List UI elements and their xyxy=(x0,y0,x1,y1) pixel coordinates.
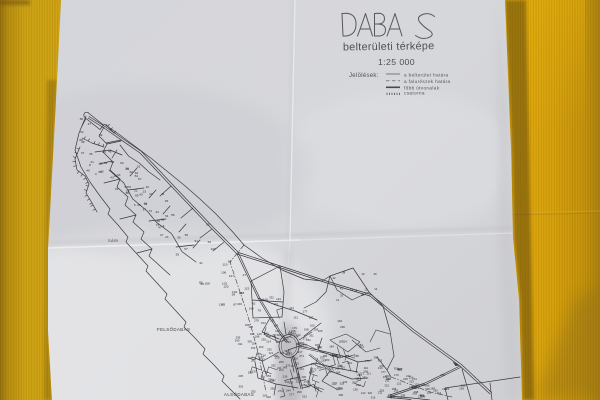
svg-text:47: 47 xyxy=(243,273,247,277)
svg-text:39: 39 xyxy=(373,272,377,276)
svg-text:62: 62 xyxy=(115,187,119,191)
svg-text:158: 158 xyxy=(427,390,432,394)
svg-text:38: 38 xyxy=(80,117,84,121)
svg-text:56: 56 xyxy=(185,233,189,237)
svg-text:40: 40 xyxy=(86,168,90,172)
svg-text:271: 271 xyxy=(299,354,304,358)
svg-text:54: 54 xyxy=(135,174,139,178)
svg-text:148: 148 xyxy=(430,387,435,391)
svg-text:33: 33 xyxy=(340,294,344,298)
svg-text:74: 74 xyxy=(156,223,160,227)
svg-text:183: 183 xyxy=(339,340,344,344)
svg-text:102: 102 xyxy=(222,281,227,285)
svg-text:216: 216 xyxy=(283,375,288,379)
svg-text:43: 43 xyxy=(139,192,143,196)
svg-text:57: 57 xyxy=(138,177,142,181)
svg-text:91: 91 xyxy=(194,239,198,243)
svg-text:41: 41 xyxy=(340,287,344,291)
svg-text:130: 130 xyxy=(285,380,290,384)
svg-text:216: 216 xyxy=(296,379,301,383)
svg-text:27: 27 xyxy=(160,233,164,237)
svg-text:253: 253 xyxy=(266,374,271,378)
svg-text:25: 25 xyxy=(165,199,169,203)
svg-text:106: 106 xyxy=(388,393,393,397)
svg-text:64: 64 xyxy=(117,173,121,177)
svg-text:6: 6 xyxy=(134,203,136,207)
svg-text:42: 42 xyxy=(252,301,256,305)
svg-text:69: 69 xyxy=(228,259,232,263)
svg-text:259: 259 xyxy=(313,327,318,331)
svg-text:123: 123 xyxy=(244,287,249,291)
svg-text:122: 122 xyxy=(397,381,402,385)
svg-text:37: 37 xyxy=(142,208,146,212)
svg-text:164: 164 xyxy=(335,370,340,374)
svg-text:59: 59 xyxy=(206,223,210,227)
svg-text:271: 271 xyxy=(303,337,308,341)
svg-text:179: 179 xyxy=(365,359,370,363)
svg-text:58: 58 xyxy=(171,213,175,217)
svg-text:281: 281 xyxy=(251,359,256,363)
svg-text:4: 4 xyxy=(95,172,97,176)
svg-text:102: 102 xyxy=(232,290,237,294)
svg-text:csatorna: csatorna xyxy=(404,91,425,96)
svg-text:226: 226 xyxy=(444,387,449,391)
svg-text:252: 252 xyxy=(296,342,301,346)
svg-text:140: 140 xyxy=(282,366,287,370)
svg-text:302: 302 xyxy=(238,384,243,388)
svg-text:332: 332 xyxy=(269,296,274,300)
svg-text:210: 210 xyxy=(337,363,342,367)
svg-text:33: 33 xyxy=(137,165,141,169)
svg-text:28: 28 xyxy=(361,293,365,297)
svg-text:39: 39 xyxy=(104,161,108,165)
svg-text:73: 73 xyxy=(149,209,153,213)
svg-text:21: 21 xyxy=(165,235,169,239)
svg-text:ALSÓDABAS: ALSÓDABAS xyxy=(224,392,254,397)
svg-text:290: 290 xyxy=(339,393,344,397)
svg-text:79: 79 xyxy=(257,308,261,312)
svg-text:242: 242 xyxy=(356,383,361,387)
svg-text:282: 282 xyxy=(362,376,367,380)
svg-text:278: 278 xyxy=(254,318,259,322)
svg-text:141: 141 xyxy=(275,329,280,333)
svg-text:29: 29 xyxy=(354,288,358,292)
svg-text:46: 46 xyxy=(108,150,112,154)
svg-text:176: 176 xyxy=(394,373,399,377)
svg-text:271: 271 xyxy=(359,345,364,349)
svg-text:116: 116 xyxy=(273,302,278,306)
svg-text:10: 10 xyxy=(149,192,153,196)
svg-text:244: 244 xyxy=(286,389,291,393)
svg-text:1:25 000: 1:25 000 xyxy=(378,57,415,67)
svg-text:101: 101 xyxy=(299,367,304,371)
svg-text:238: 238 xyxy=(459,386,464,390)
svg-text:51: 51 xyxy=(165,214,169,218)
svg-text:221: 221 xyxy=(295,362,300,366)
svg-text:10: 10 xyxy=(361,272,365,276)
svg-text:23: 23 xyxy=(143,189,147,193)
svg-text:168: 168 xyxy=(255,334,260,338)
svg-text:235: 235 xyxy=(238,374,243,378)
svg-text:11: 11 xyxy=(114,174,117,178)
svg-text:65: 65 xyxy=(137,203,141,207)
svg-text:152: 152 xyxy=(271,333,276,337)
svg-text:39: 39 xyxy=(99,133,103,137)
svg-text:149: 149 xyxy=(337,319,342,323)
svg-text:11: 11 xyxy=(336,298,339,302)
svg-text:101: 101 xyxy=(383,375,388,379)
svg-text:299: 299 xyxy=(340,325,345,329)
svg-text:105: 105 xyxy=(310,324,315,328)
svg-text:274: 274 xyxy=(412,377,417,381)
svg-text:327: 327 xyxy=(309,316,314,320)
svg-text:246: 246 xyxy=(411,386,416,390)
svg-text:38: 38 xyxy=(342,270,346,274)
svg-text:107: 107 xyxy=(261,376,266,380)
svg-text:177: 177 xyxy=(381,370,386,374)
svg-text:127: 127 xyxy=(239,291,244,295)
svg-text:266: 266 xyxy=(425,384,430,388)
svg-text:56: 56 xyxy=(126,167,130,171)
svg-text:316: 316 xyxy=(371,395,376,399)
svg-text:131: 131 xyxy=(270,318,275,322)
svg-text:188: 188 xyxy=(305,384,310,388)
svg-text:42: 42 xyxy=(332,276,336,280)
svg-text:236: 236 xyxy=(237,302,242,306)
svg-text:168: 168 xyxy=(263,298,268,302)
svg-text:299: 299 xyxy=(297,390,302,394)
svg-text:238: 238 xyxy=(291,329,296,333)
svg-text:211: 211 xyxy=(378,391,383,395)
svg-text:137: 137 xyxy=(286,349,291,353)
svg-text:60: 60 xyxy=(120,161,124,165)
svg-text:200: 200 xyxy=(440,373,445,377)
svg-text:60: 60 xyxy=(100,169,104,173)
svg-text:102: 102 xyxy=(397,395,402,399)
svg-text:SÁRI: SÁRI xyxy=(108,239,119,243)
svg-text:9: 9 xyxy=(163,224,165,228)
svg-text:Jelölések:: Jelölések: xyxy=(349,73,379,79)
svg-text:198: 198 xyxy=(250,332,255,336)
svg-text:336: 336 xyxy=(247,339,252,343)
svg-text:59: 59 xyxy=(176,252,180,256)
svg-text:16: 16 xyxy=(145,185,149,189)
svg-text:112: 112 xyxy=(219,303,224,307)
svg-text:11: 11 xyxy=(161,192,164,196)
svg-text:259: 259 xyxy=(279,360,284,364)
svg-text:131: 131 xyxy=(293,316,298,320)
svg-text:265: 265 xyxy=(304,380,309,384)
svg-text:100: 100 xyxy=(420,383,425,387)
svg-text:21: 21 xyxy=(90,160,94,164)
svg-text:22: 22 xyxy=(155,210,159,214)
svg-text:184: 184 xyxy=(329,344,334,348)
svg-text:68: 68 xyxy=(161,217,165,221)
svg-text:143: 143 xyxy=(361,391,366,395)
svg-text:331: 331 xyxy=(309,334,314,338)
svg-text:313: 313 xyxy=(302,395,307,399)
svg-text:41: 41 xyxy=(199,261,203,265)
svg-text:153: 153 xyxy=(251,346,256,350)
svg-text:belterületi térképe: belterületi térképe xyxy=(343,40,435,53)
svg-text:131: 131 xyxy=(289,306,294,310)
svg-text:105: 105 xyxy=(264,332,269,336)
svg-text:32: 32 xyxy=(99,162,103,166)
svg-text:185: 185 xyxy=(354,354,359,358)
svg-text:169: 169 xyxy=(249,306,254,310)
svg-text:14: 14 xyxy=(126,190,130,194)
svg-text:65: 65 xyxy=(200,282,204,286)
svg-text:255: 255 xyxy=(338,387,343,391)
svg-text:47: 47 xyxy=(88,122,92,126)
svg-text:177: 177 xyxy=(303,310,308,314)
svg-text:273: 273 xyxy=(278,389,283,393)
svg-text:234: 234 xyxy=(379,364,384,368)
svg-text:196: 196 xyxy=(317,346,322,350)
svg-text:108: 108 xyxy=(205,281,210,285)
svg-text:43: 43 xyxy=(111,160,115,164)
svg-text:37: 37 xyxy=(81,151,85,155)
svg-text:52: 52 xyxy=(80,130,84,134)
svg-text:150: 150 xyxy=(274,354,279,358)
svg-text:206: 206 xyxy=(252,341,257,345)
svg-text:206: 206 xyxy=(301,375,306,379)
svg-text:30: 30 xyxy=(177,236,181,240)
svg-text:211: 211 xyxy=(366,372,371,376)
svg-text:304: 304 xyxy=(347,361,352,365)
svg-text:106: 106 xyxy=(221,270,226,274)
svg-text:295: 295 xyxy=(270,386,275,390)
svg-text:151: 151 xyxy=(311,362,316,366)
svg-text:110: 110 xyxy=(364,366,369,370)
svg-text:137: 137 xyxy=(329,370,334,374)
svg-text:69: 69 xyxy=(135,193,139,197)
svg-text:214: 214 xyxy=(266,340,271,344)
svg-text:293: 293 xyxy=(286,340,291,344)
svg-text:124: 124 xyxy=(276,297,281,301)
svg-text:FELSŐDABAS: FELSŐDABAS xyxy=(157,327,190,332)
svg-text:22: 22 xyxy=(134,189,138,193)
svg-text:191: 191 xyxy=(238,342,243,346)
svg-text:64: 64 xyxy=(208,240,212,244)
svg-text:12: 12 xyxy=(374,287,378,291)
svg-text:190: 190 xyxy=(235,339,240,343)
svg-text:131: 131 xyxy=(303,344,308,348)
svg-text:144: 144 xyxy=(342,380,347,384)
svg-text:322: 322 xyxy=(384,383,389,387)
svg-text:105: 105 xyxy=(318,329,323,333)
svg-text:198: 198 xyxy=(304,327,309,331)
svg-text:220: 220 xyxy=(332,382,337,386)
svg-text:137: 137 xyxy=(252,369,257,373)
svg-text:203: 203 xyxy=(259,345,264,349)
svg-text:200: 200 xyxy=(403,377,408,381)
svg-text:127: 127 xyxy=(418,394,423,398)
svg-text:272: 272 xyxy=(359,372,364,376)
svg-text:193: 193 xyxy=(273,324,278,328)
svg-text:238: 238 xyxy=(293,357,298,361)
svg-text:127: 127 xyxy=(229,274,234,278)
svg-text:119: 119 xyxy=(223,263,228,267)
svg-text:120: 120 xyxy=(280,351,285,355)
svg-text:252: 252 xyxy=(271,363,276,367)
svg-text:153: 153 xyxy=(261,321,266,325)
svg-text:147: 147 xyxy=(260,357,265,361)
svg-text:136: 136 xyxy=(353,388,358,392)
svg-text:109: 109 xyxy=(211,247,216,251)
svg-text:120: 120 xyxy=(334,353,339,357)
svg-text:111: 111 xyxy=(355,377,360,381)
svg-text:267: 267 xyxy=(310,370,315,374)
svg-text:35: 35 xyxy=(89,152,93,156)
svg-text:161: 161 xyxy=(317,366,322,370)
svg-text:268: 268 xyxy=(374,356,379,360)
svg-text:122: 122 xyxy=(296,333,301,337)
svg-text:258: 258 xyxy=(414,390,419,394)
svg-text:a falurészek határa: a falurészek határa xyxy=(404,79,451,84)
svg-text:a belterület határa: a belterület határa xyxy=(404,72,448,77)
svg-text:32: 32 xyxy=(129,170,133,174)
svg-text:38: 38 xyxy=(81,140,85,144)
svg-text:35: 35 xyxy=(102,150,106,154)
svg-text:211: 211 xyxy=(277,366,282,370)
svg-text:306: 306 xyxy=(394,366,399,370)
svg-text:304: 304 xyxy=(276,333,281,337)
svg-text:105: 105 xyxy=(248,325,253,329)
svg-text:277: 277 xyxy=(289,392,294,396)
svg-text:57: 57 xyxy=(184,247,188,251)
svg-text:73: 73 xyxy=(143,202,147,206)
svg-text:158: 158 xyxy=(392,387,397,391)
svg-text:70: 70 xyxy=(128,185,132,189)
svg-text:12: 12 xyxy=(364,287,368,291)
svg-text:316: 316 xyxy=(266,395,271,399)
svg-text:280: 280 xyxy=(325,358,330,362)
